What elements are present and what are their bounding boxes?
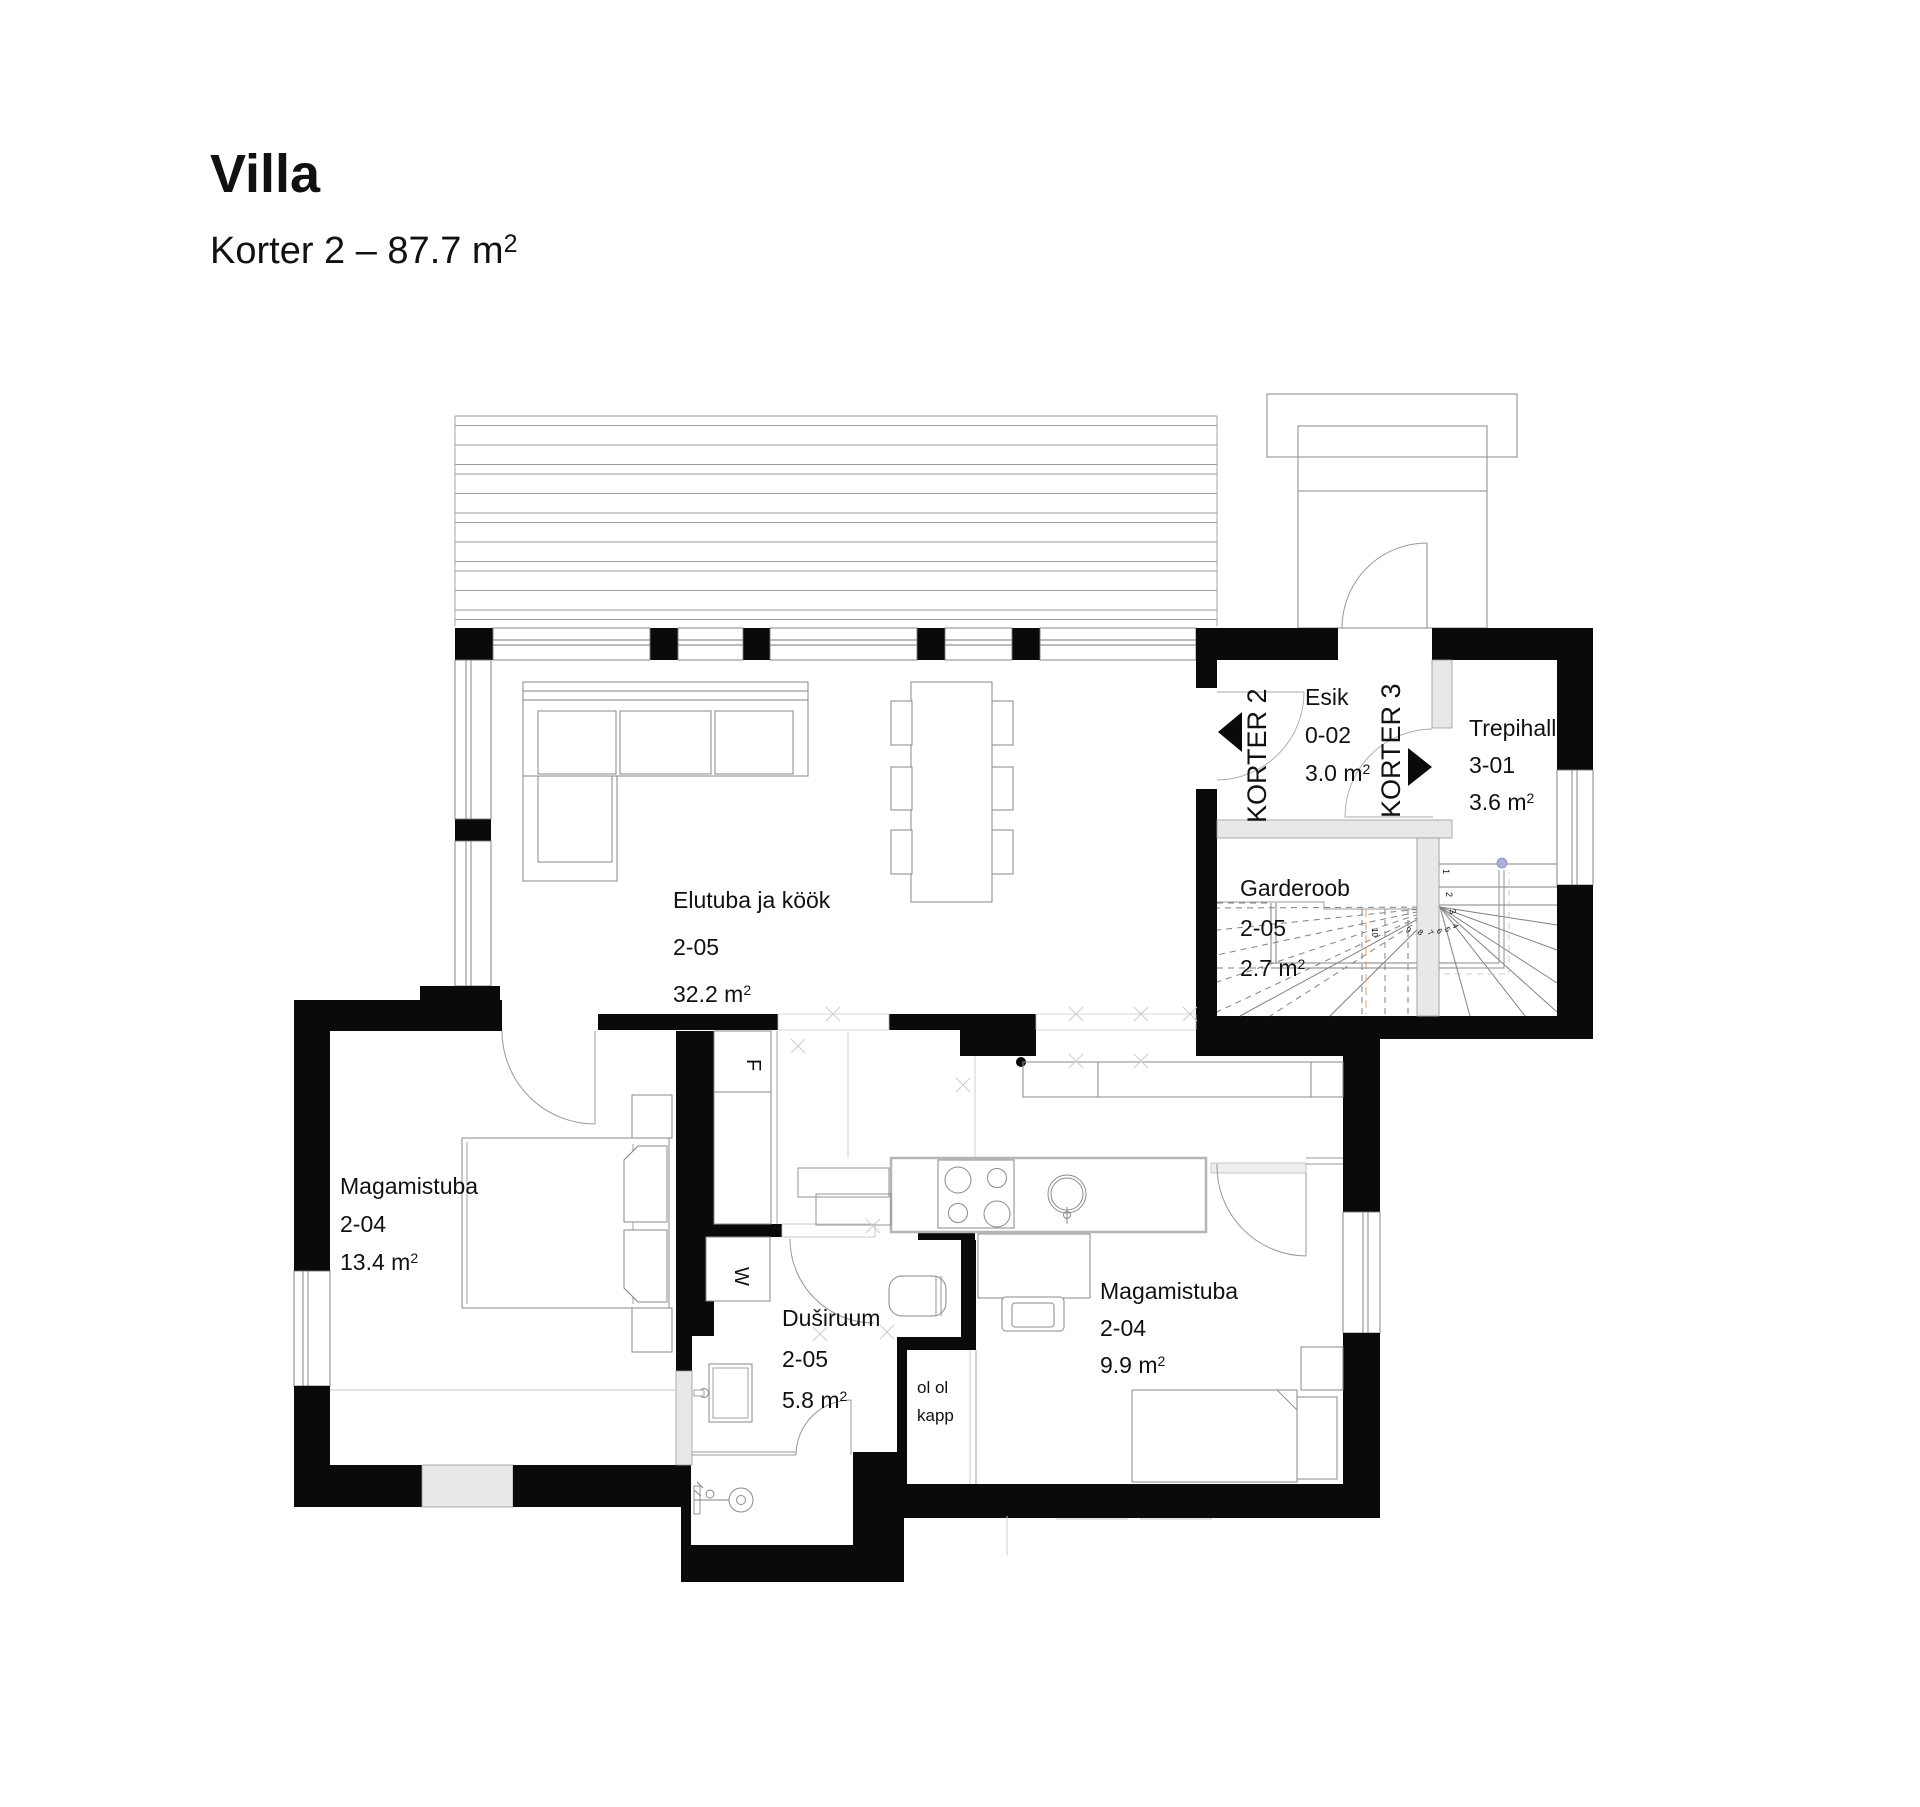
svg-text:Villa: Villa bbox=[210, 144, 321, 204]
svg-text:2-04: 2-04 bbox=[340, 1211, 386, 1237]
svg-text:5.8 m2: 5.8 m2 bbox=[782, 1387, 848, 1413]
svg-text:3.0 m2: 3.0 m2 bbox=[1305, 760, 1371, 786]
svg-text:9.9 m2: 9.9 m2 bbox=[1100, 1352, 1166, 1378]
svg-text:F: F bbox=[742, 1059, 764, 1071]
svg-text:kapp: kapp bbox=[917, 1406, 954, 1425]
svg-text:0-02: 0-02 bbox=[1305, 722, 1351, 748]
svg-text:3-01: 3-01 bbox=[1469, 752, 1515, 778]
svg-text:2: 2 bbox=[1444, 892, 1454, 897]
svg-text:Esik: Esik bbox=[1305, 684, 1349, 710]
svg-text:3.6 m2: 3.6 m2 bbox=[1469, 789, 1535, 815]
svg-text:KORTER 2: KORTER 2 bbox=[1242, 688, 1272, 823]
svg-text:2-05: 2-05 bbox=[782, 1346, 828, 1372]
svg-text:Elutuba ja köök: Elutuba ja köök bbox=[673, 887, 831, 913]
svg-text:13.4 m2: 13.4 m2 bbox=[340, 1249, 418, 1275]
svg-text:Trepihall: Trepihall bbox=[1469, 715, 1556, 741]
svg-text:Garderoob: Garderoob bbox=[1240, 875, 1350, 901]
svg-text:1: 1 bbox=[1441, 869, 1451, 874]
svg-text:KORTER 3: KORTER 3 bbox=[1376, 683, 1406, 818]
svg-text:Korter 2 – 87.7 m2: Korter 2 – 87.7 m2 bbox=[210, 230, 518, 272]
svg-text:W: W bbox=[730, 1267, 752, 1286]
svg-text:Magamistuba: Magamistuba bbox=[1100, 1278, 1238, 1304]
svg-text:Magamistuba: Magamistuba bbox=[340, 1173, 478, 1199]
svg-text:2-05: 2-05 bbox=[1240, 915, 1286, 941]
svg-text:2.7 m2: 2.7 m2 bbox=[1240, 955, 1306, 981]
svg-text:ol ol: ol ol bbox=[917, 1378, 948, 1397]
svg-text:Duširuum: Duširuum bbox=[782, 1305, 880, 1331]
svg-text:10: 10 bbox=[1370, 928, 1379, 937]
svg-text:2-04: 2-04 bbox=[1100, 1315, 1146, 1341]
svg-text:2-05: 2-05 bbox=[673, 934, 719, 960]
svg-text:32.2 m2: 32.2 m2 bbox=[673, 981, 751, 1007]
